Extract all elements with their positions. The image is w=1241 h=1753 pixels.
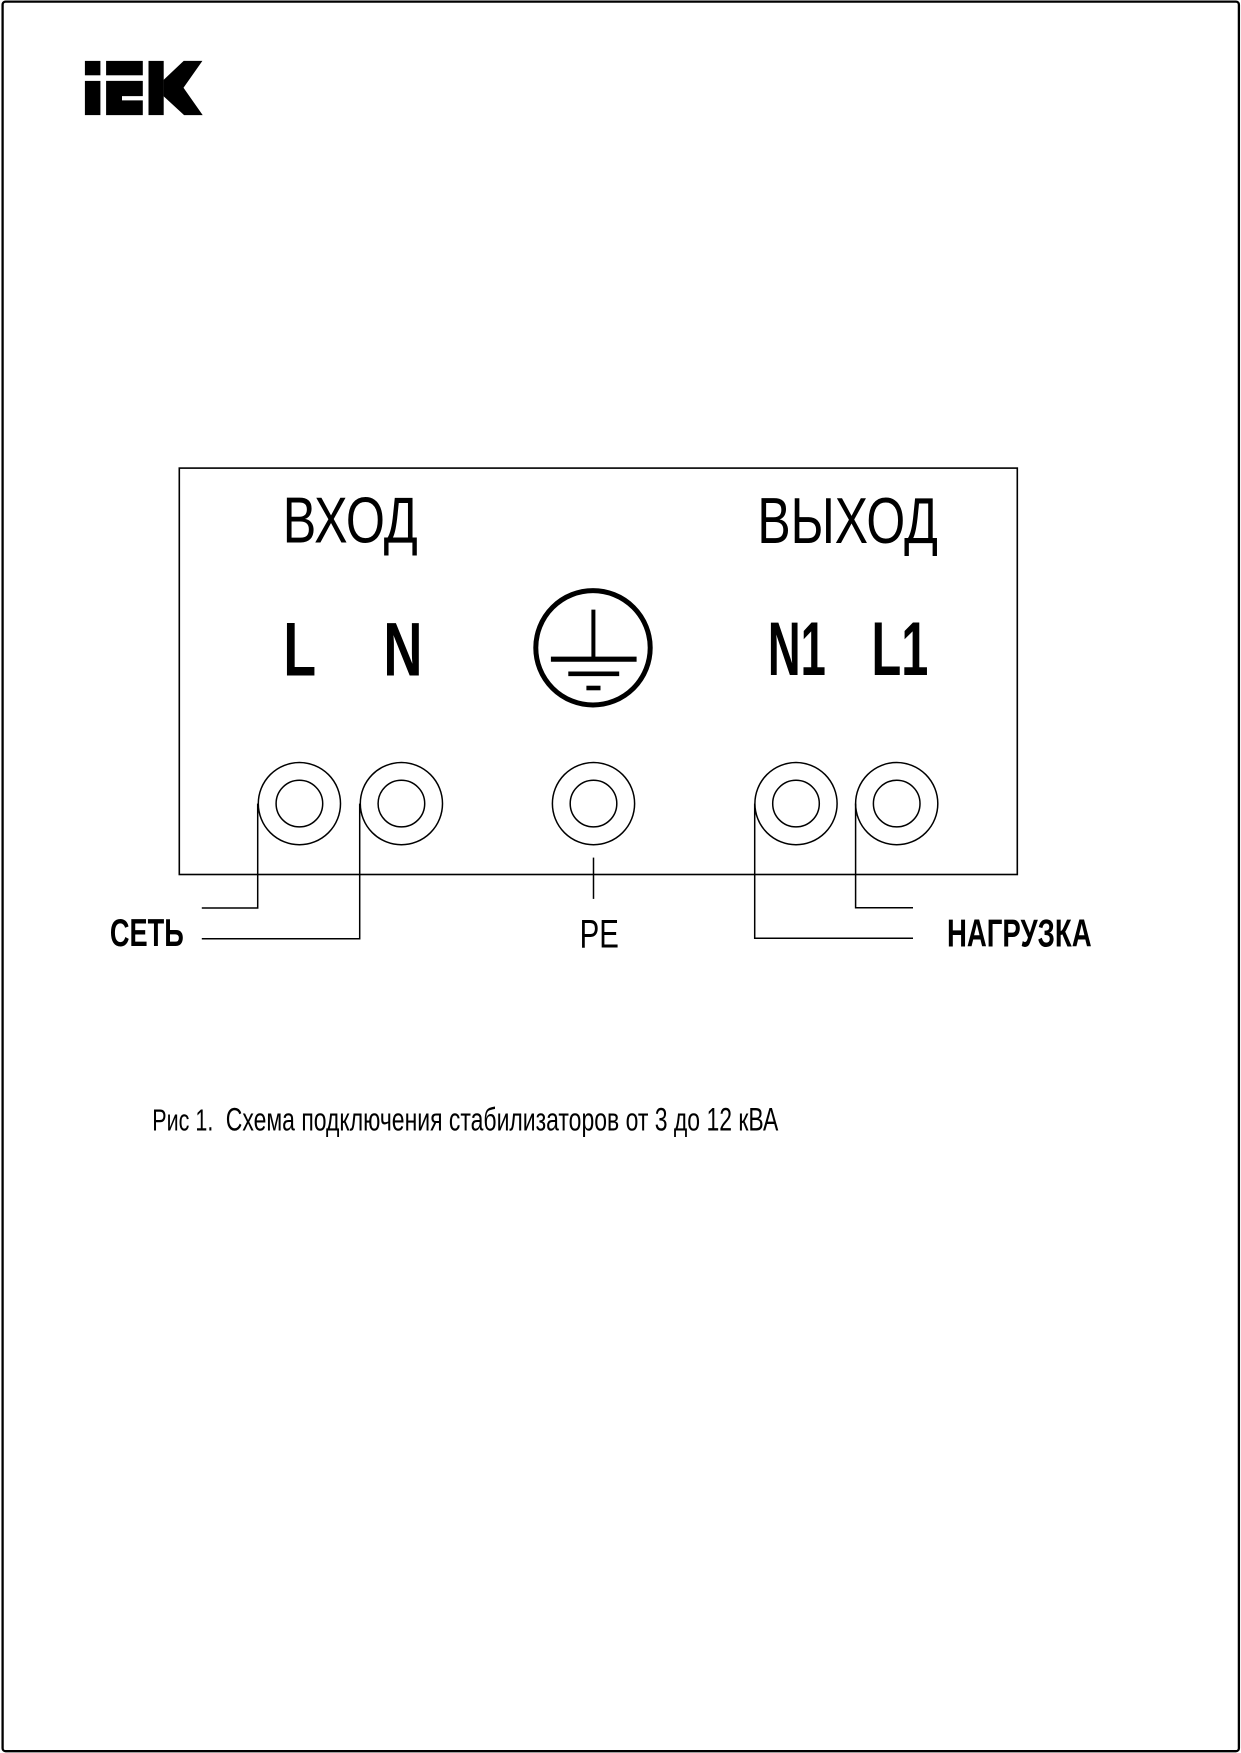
svg-text:Рис 1.: Рис 1. xyxy=(152,1103,213,1137)
svg-text:L: L xyxy=(283,608,316,693)
svg-text:СЕТЬ: СЕТЬ xyxy=(110,912,184,955)
svg-text:L1: L1 xyxy=(872,607,929,692)
svg-text:N: N xyxy=(383,608,422,693)
svg-text:N1: N1 xyxy=(768,607,826,692)
svg-text:PE: PE xyxy=(580,913,619,957)
svg-text:ВХОД: ВХОД xyxy=(283,484,418,557)
svg-text:Схема подключения стабилизатор: Схема подключения стабилизаторов от 3 до… xyxy=(226,1101,779,1137)
svg-text:ВЫХОД: ВЫХОД xyxy=(757,484,938,557)
svg-text:НАГРУЗКА: НАГРУЗКА xyxy=(947,912,1092,955)
